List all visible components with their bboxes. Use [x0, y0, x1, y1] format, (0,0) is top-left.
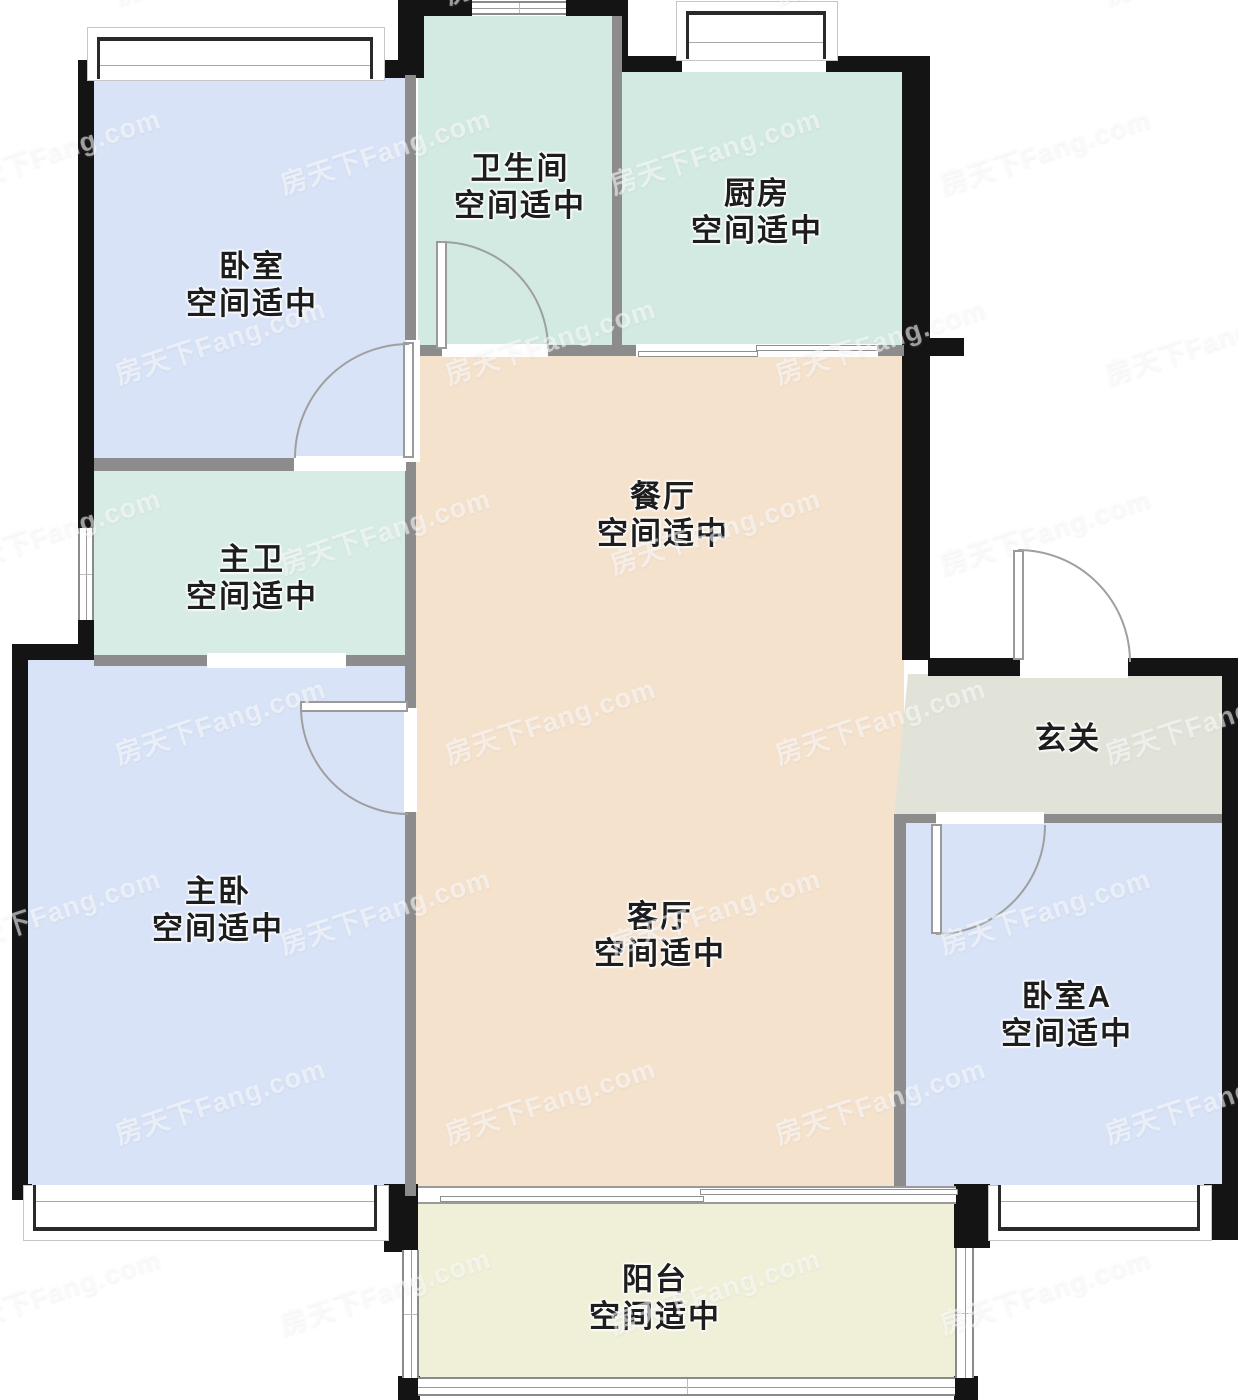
wall: [1044, 814, 1222, 823]
bay-window-frame: [33, 1185, 377, 1231]
wall: [405, 812, 416, 1196]
room-name: 玄关: [1035, 720, 1101, 757]
door-leaf: [1013, 550, 1024, 660]
door-opening: [442, 344, 548, 357]
watermark-text: 房天下Fang.com: [0, 1237, 165, 1342]
wall: [405, 75, 416, 340]
wall: [928, 658, 1020, 676]
balcony-railing: [955, 1248, 974, 1378]
wall: [94, 655, 207, 666]
room-name: 客厅: [594, 898, 726, 935]
wall: [954, 1376, 978, 1400]
label-kitchen: 厨房 空间适中: [691, 175, 823, 249]
room-name: 卧室A: [1001, 978, 1133, 1015]
sliding-door-panel: [440, 1196, 704, 1202]
wall: [398, 14, 424, 78]
room-name: 厨房: [691, 175, 823, 212]
room-name: 卧室: [186, 248, 318, 285]
label-dining: 餐厅 空间适中: [597, 478, 729, 552]
room-note: 空间适中: [152, 910, 284, 947]
wall: [548, 345, 636, 356]
room-note: 空间适中: [589, 1298, 721, 1335]
door-opening: [294, 456, 406, 471]
door-leaf: [436, 241, 447, 349]
door-leaf: [931, 824, 942, 934]
wall: [902, 338, 964, 356]
door-arc: [1018, 550, 1130, 662]
wall: [612, 16, 622, 346]
watermark-text: 房天下Fang.com: [1099, 0, 1238, 12]
watermark-text: 房天下Fang.com: [109, 0, 330, 12]
label-master-bedroom: 主卧 空间适中: [152, 873, 284, 947]
room-note: 空间适中: [597, 515, 729, 552]
wall: [902, 56, 930, 660]
door-opening: [936, 812, 1044, 824]
wall: [12, 644, 28, 1200]
wall: [826, 56, 906, 72]
label-bathroom: 卫生间 空间适中: [454, 150, 586, 224]
floor-plan: 卧室 空间适中 卫生间 空间适中 厨房 空间适中 餐厅 空间适中 主卫 空间适中…: [0, 0, 1238, 1400]
room-note: 空间适中: [1001, 1015, 1133, 1052]
wall: [878, 345, 904, 356]
wall: [78, 60, 94, 472]
bay-window-frame: [97, 37, 373, 79]
sliding-door-panel: [638, 351, 758, 357]
sliding-door-kitchen: [636, 344, 878, 357]
window: [472, 1, 566, 15]
label-master-bath: 主卫 空间适中: [186, 541, 318, 615]
room-note: 空间适中: [594, 935, 726, 972]
sliding-door-panel: [756, 345, 878, 351]
bay-window-frame: [998, 1185, 1200, 1231]
door-opening: [1020, 656, 1128, 678]
wall: [398, 1376, 420, 1400]
room-note: 空间适中: [186, 578, 318, 615]
balcony-railing: [402, 1250, 419, 1378]
room-note: 空间适中: [691, 212, 823, 249]
label-living: 客厅 空间适中: [594, 898, 726, 972]
wall: [78, 472, 94, 528]
wall: [954, 1184, 990, 1248]
sliding-door-panel: [700, 1189, 958, 1195]
window: [78, 528, 94, 620]
watermark-text: 房天下Fang.com: [1099, 287, 1238, 392]
label-bedroom-top: 卧室 空间适中: [186, 248, 318, 322]
room-note: 空间适中: [186, 285, 318, 322]
bay-window-frame: [686, 11, 826, 59]
sliding-door-balcony: [418, 1186, 956, 1204]
label-balcony: 阳台 空间适中: [589, 1261, 721, 1335]
room-note: 空间适中: [454, 187, 586, 224]
wall: [894, 814, 906, 1196]
watermark-text: 房天下Fang.com: [934, 477, 1155, 582]
room-name: 餐厅: [597, 478, 729, 515]
wall: [620, 56, 682, 72]
watermark-text: 房天下Fang.com: [934, 97, 1155, 202]
label-entry: 玄关: [1035, 720, 1101, 757]
wall: [1222, 658, 1238, 1204]
room-name: 主卫: [186, 541, 318, 578]
door-opening: [207, 653, 346, 668]
wall: [346, 655, 406, 666]
label-bedroom-a: 卧室A 空间适中: [1001, 978, 1133, 1052]
room-name: 阳台: [589, 1261, 721, 1298]
wall: [405, 462, 416, 708]
door-opening: [404, 708, 417, 812]
balcony-railing: [418, 1377, 955, 1396]
wall: [906, 814, 936, 823]
door-leaf: [300, 701, 408, 712]
room-name: 主卧: [152, 873, 284, 910]
room-name: 卫生间: [454, 150, 586, 187]
door-leaf: [403, 342, 414, 458]
